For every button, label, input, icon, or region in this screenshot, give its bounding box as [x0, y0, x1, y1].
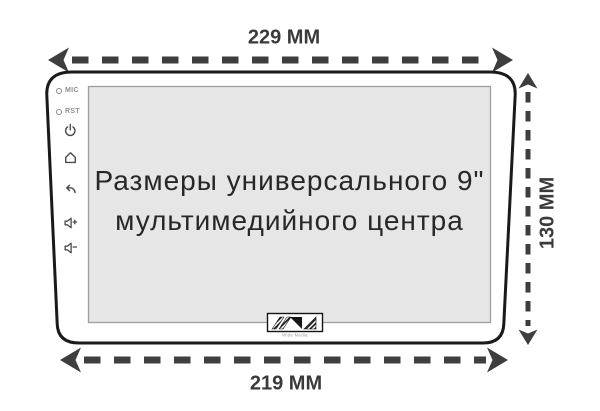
- bottom-width-label: 219 ММ: [250, 373, 322, 396]
- mic-label: MIC: [65, 87, 79, 94]
- top-width-label: 229 ММ: [248, 27, 320, 50]
- reset-hole-icon: [56, 109, 62, 115]
- screen-title: Размеры универсального 9" мультимедийног…: [89, 83, 490, 318]
- reset-port: RST: [56, 108, 80, 115]
- side-height-label: 130 ММ: [537, 177, 560, 249]
- top-width-arrow: [48, 48, 513, 73]
- brand-logo-caption: Wide Media: [282, 334, 308, 338]
- side-height-arrow: [519, 73, 538, 345]
- screen-title-line1: Размеры универсального 9": [95, 161, 485, 201]
- mic-hole-icon: [56, 88, 62, 94]
- bottom-width-arrow: [60, 348, 508, 373]
- dimension-diagram: 229 ММ 219 ММ 130 ММ Размеры универсальн…: [0, 0, 600, 411]
- reset-label: RST: [65, 108, 80, 115]
- screen-title-line2: мультимедийного центра: [115, 201, 464, 241]
- mic-port: MIC: [56, 87, 79, 94]
